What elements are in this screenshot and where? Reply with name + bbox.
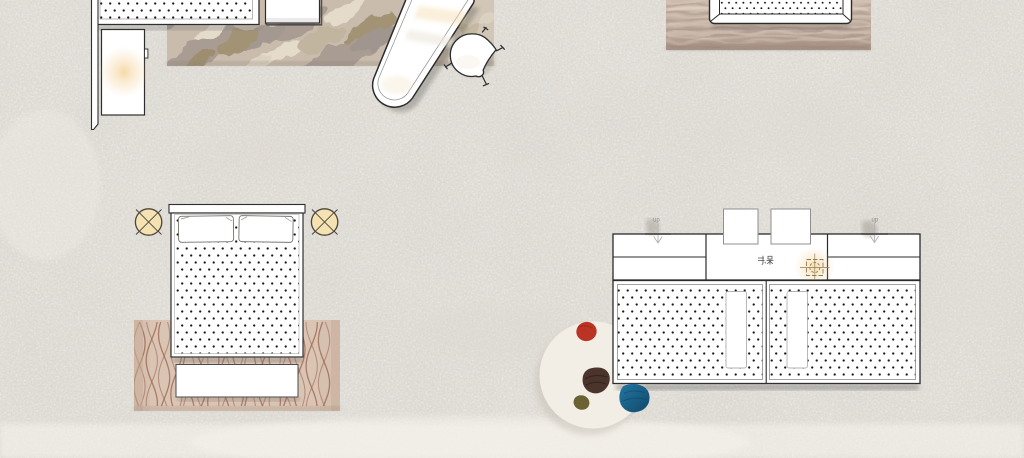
svg-text:up: up [653, 218, 660, 224]
svg-text:up: up [872, 218, 879, 224]
